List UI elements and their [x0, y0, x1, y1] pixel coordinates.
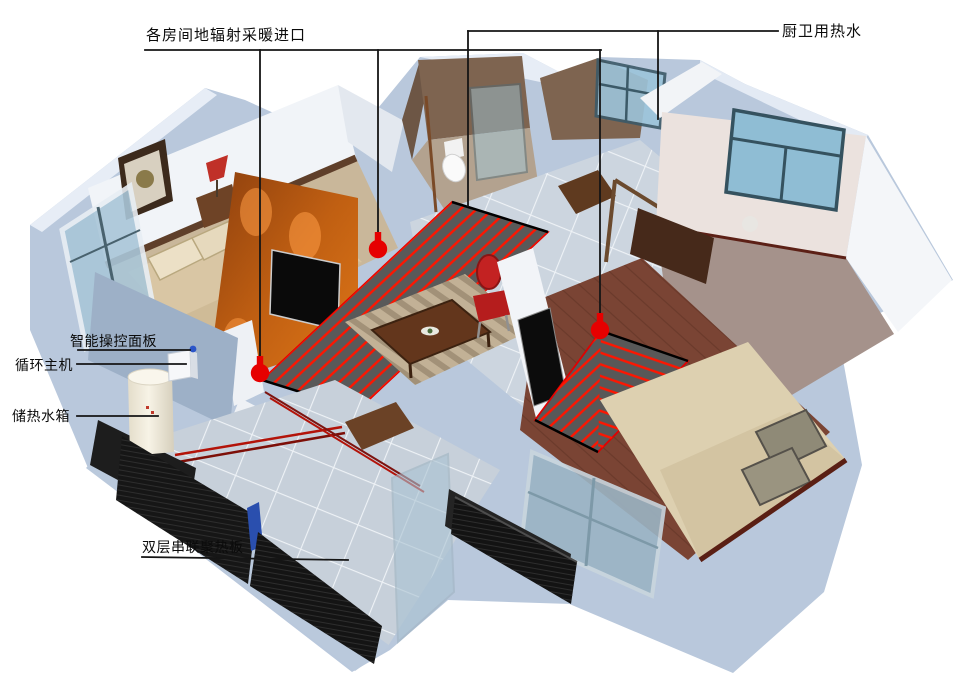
water-tank-top [128, 369, 172, 385]
circulation-host-side [190, 350, 198, 379]
picture-art [136, 170, 154, 188]
label-control-panel: 智能操控面板 [70, 334, 157, 350]
label-heat-panel: 双层串联聚热板 [142, 540, 244, 556]
floor-lamp [742, 216, 758, 232]
tank-logo [146, 406, 149, 409]
plate-decor [428, 329, 433, 334]
water-tank-body [128, 374, 174, 456]
label-circulation-host: 循环主机 [15, 358, 73, 374]
shower-glass [470, 84, 527, 180]
table-leg [488, 333, 489, 347]
glass-railing [392, 454, 454, 642]
tank-logo [151, 411, 154, 414]
wall-glow [289, 212, 321, 260]
label-room-heating-inlets: 各房间地辐射采暖进口 [146, 26, 306, 44]
wall-glow [240, 188, 272, 236]
red-chair-back [477, 255, 501, 289]
control-panel-dot [190, 346, 197, 353]
floor-heating-diagram: 各房间地辐射采暖进口 厨卫用热水 智能操控面板 循环主机 储热水箱 双层串联聚热… [0, 0, 961, 679]
label-heat-storage-tank: 储热水箱 [12, 409, 70, 425]
circulation-host-unit [168, 350, 191, 381]
table-leg [410, 364, 411, 378]
label-hot-water: 厨卫用热水 [782, 22, 862, 40]
